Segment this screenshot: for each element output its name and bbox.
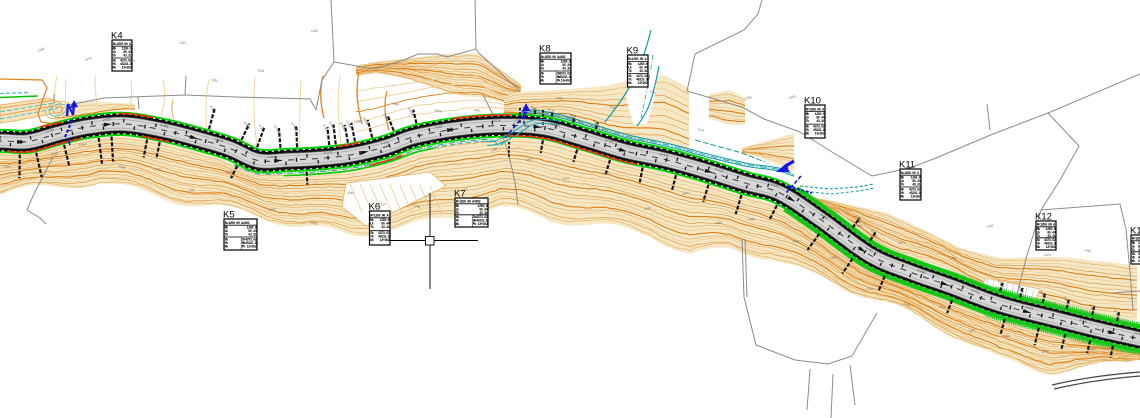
svg-text:43.31: 43.31 [562,68,571,72]
svg-text:Kk: Kk [113,65,117,70]
svg-text:13+262: 13+262 [911,195,921,199]
svg-text:Pk: Pk [473,222,477,227]
svg-text:1+231: 1+231 [267,155,276,159]
svg-text:R=1250.00 A: R=1250.00 A [628,58,647,62]
svg-text:43.31: 43.31 [912,184,921,188]
svg-text:Tk: Tk [113,54,117,59]
svg-text:Tk: Tk [901,183,905,188]
svg-text:1322: 1322 [603,171,611,175]
svg-text:R=1250.00 A: R=1250.00 A [113,43,132,47]
svg-text:Kk: Kk [628,81,632,86]
svg-text:4+576: 4+576 [492,119,501,123]
svg-text:Tk: Tk [806,119,810,124]
svg-text:R=1250.00 A=802: R=1250.00 A=802 [225,222,250,226]
svg-text:1324: 1324 [1044,253,1051,257]
svg-text:13+262: 13+262 [561,79,571,83]
svg-text:Kk: Kk [225,244,229,249]
svg-text:R=1250.00 A: R=1250.00 A [806,108,825,112]
svg-text:1282: 1282 [644,206,652,211]
svg-text:13+262: 13+262 [815,133,825,137]
svg-text:Kk: Kk [806,132,810,137]
svg-text:13+262: 13+262 [122,66,132,70]
svg-text:1356: 1356 [949,256,957,260]
svg-text:43.31: 43.31 [248,234,257,238]
svg-text:1394: 1394 [79,142,87,147]
svg-text:4+278: 4+278 [324,150,333,155]
svg-text:1411: 1411 [155,167,162,172]
svg-text:43.31: 43.31 [816,120,825,124]
svg-text:1293: 1293 [562,176,570,181]
svg-text:Kk: Kk [456,222,460,227]
svg-text:Pk: Pk [242,244,246,249]
svg-text:1365: 1365 [525,157,533,162]
svg-text:R=1250.: R=1250. [1132,238,1140,242]
svg-text:13+262: 13+262 [380,239,390,243]
svg-text:1353: 1353 [179,41,187,45]
svg-text:43.31: 43.31 [639,70,648,74]
svg-text:R=1250.00 A=802: R=1250.00 A=802 [456,201,481,205]
svg-text:1326: 1326 [855,224,862,228]
svg-text:1328: 1328 [51,151,59,156]
svg-text:Kk: Kk [1132,259,1136,264]
svg-text:R=1250.00 A=802: R=1250.00 A=802 [541,56,566,60]
svg-text:13+262: 13+262 [1046,246,1056,250]
svg-text:Kk: Kk [541,78,545,83]
svg-text:Tk: Tk [225,233,229,238]
svg-text:R=1250.00 A: R=1250.00 A [1037,224,1056,228]
svg-text:1311: 1311 [938,305,945,309]
svg-text:13+262: 13+262 [638,82,648,86]
svg-text:13+262: 13+262 [478,223,488,227]
svg-text:43.31: 43.31 [381,226,390,230]
svg-text:Kk: Kk [370,238,374,243]
svg-text:R=1250.00 A: R=1250.00 A [370,214,389,218]
svg-text:1308: 1308 [715,221,722,225]
svg-text:1318: 1318 [311,29,318,33]
svg-text:Tk: Tk [370,225,374,230]
svg-text:1409: 1409 [556,96,564,101]
svg-text:Tk: Tk [541,67,545,72]
svg-text:1389: 1389 [748,217,756,221]
svg-text:Kk: Kk [1037,245,1041,250]
svg-text:Tk: Tk [628,69,632,74]
svg-text:1394: 1394 [792,239,800,244]
svg-text:1360: 1360 [830,255,838,260]
svg-text:13+262: 13+262 [247,245,257,249]
svg-text:Kk: Kk [901,194,905,199]
svg-text:1283: 1283 [347,191,354,195]
svg-text:R=1250.00 A: R=1250.00 A [901,172,920,176]
svg-text:1334: 1334 [1003,334,1010,338]
svg-text:1377: 1377 [898,241,905,245]
svg-text:Pk: Pk [557,78,561,83]
svg-text:1342: 1342 [473,108,481,113]
